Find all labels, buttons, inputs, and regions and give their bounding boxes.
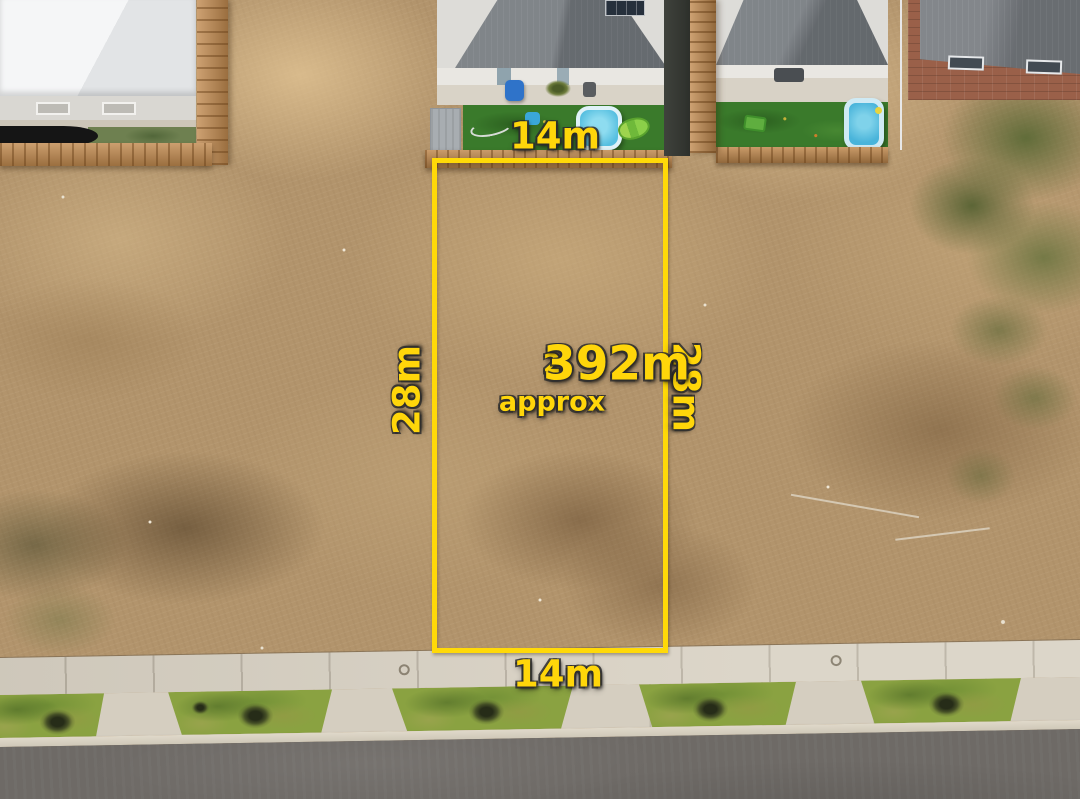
outdoor-chair: [505, 80, 524, 101]
neighbor-property-left: [0, 0, 232, 170]
verge-grass-patch: [168, 689, 333, 735]
verge-grass-patch: [861, 678, 1022, 724]
neighbor-property-brick: [908, 0, 1080, 105]
shrub: [237, 702, 273, 729]
timber-fence: [425, 150, 672, 168]
shrub: [191, 700, 209, 714]
side-passage-shadow: [664, 0, 690, 156]
house-wall: [0, 96, 196, 122]
shrub: [693, 696, 729, 723]
window: [36, 102, 70, 115]
inflatable-pool: [844, 98, 884, 150]
utility-lid: [399, 664, 410, 675]
skylight: [948, 55, 984, 70]
window: [102, 102, 136, 115]
aerial-photo-scene: 14m 14m 28m 28m 392m2 approx: [0, 0, 1080, 799]
bbq-grill: [774, 68, 804, 82]
verge-grass-patch: [392, 685, 574, 731]
garden-shed: [430, 108, 461, 153]
right-edge-scrub: [900, 60, 1080, 580]
patio-item: [583, 82, 596, 97]
white-metal-roof: [0, 0, 196, 96]
neighbor-property-center: [425, 0, 675, 170]
kids-stool: [525, 112, 540, 125]
play-mat: [743, 115, 767, 133]
potted-plant: [545, 80, 571, 97]
shrub: [39, 709, 75, 736]
skylight: [1026, 59, 1062, 74]
neighbor-property-right: [716, 0, 888, 170]
solar-panel: [605, 0, 645, 16]
verge-grass-patch: [0, 693, 105, 738]
timber-fence: [0, 143, 212, 166]
utility-lid: [831, 655, 842, 666]
shrub: [928, 691, 964, 718]
verge-grass-patch: [639, 682, 797, 728]
street: [0, 631, 1080, 799]
timber-fence: [197, 0, 228, 165]
timber-fence: [690, 0, 716, 153]
timber-fence: [716, 147, 888, 163]
kiddie-pool: [576, 106, 622, 150]
pool-ball: [875, 107, 882, 114]
shrub: [468, 699, 504, 726]
